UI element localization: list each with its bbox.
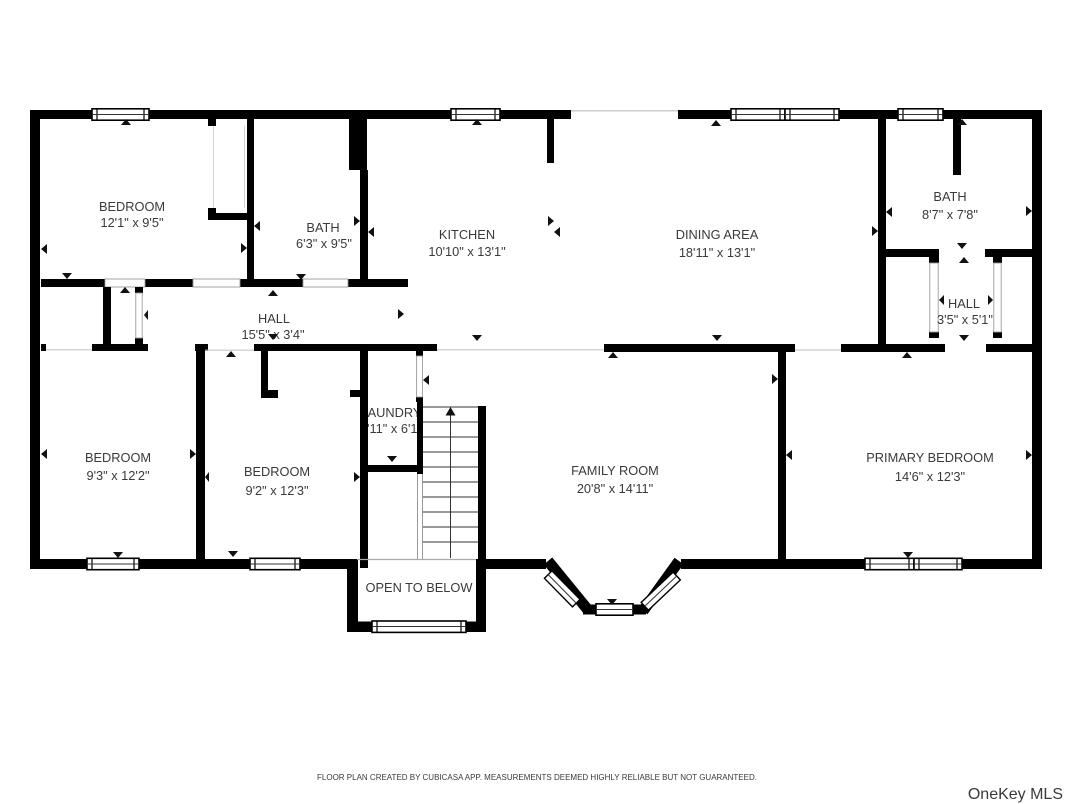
svg-text:PRIMARY BEDROOM: PRIMARY BEDROOM	[866, 450, 994, 465]
svg-text:HALL: HALL	[948, 296, 980, 311]
svg-text:BATH: BATH	[933, 189, 966, 204]
svg-text:20'8" x 14'11": 20'8" x 14'11"	[577, 481, 653, 496]
svg-text:2'11" x 6'1": 2'11" x 6'1"	[360, 421, 422, 436]
svg-text:HALL: HALL	[258, 311, 290, 326]
svg-text:KITCHEN: KITCHEN	[439, 227, 495, 242]
svg-text:9'3" x 12'2": 9'3" x 12'2"	[86, 468, 149, 483]
svg-text:14'6" x 12'3": 14'6" x 12'3"	[895, 469, 965, 484]
svg-text:6'3" x 9'5": 6'3" x 9'5"	[296, 236, 352, 251]
svg-text:BEDROOM: BEDROOM	[244, 464, 310, 479]
svg-text:8'7" x 7'8": 8'7" x 7'8"	[922, 207, 978, 222]
svg-text:9'2" x 12'3": 9'2" x 12'3"	[245, 483, 308, 498]
svg-text:3'5" x 5'1": 3'5" x 5'1"	[937, 312, 993, 327]
svg-text:12'1" x 9'5": 12'1" x 9'5"	[100, 215, 163, 230]
svg-text:BEDROOM: BEDROOM	[99, 199, 165, 214]
svg-text:LAUNDRY: LAUNDRY	[361, 405, 422, 420]
svg-text:BATH: BATH	[306, 220, 339, 235]
svg-text:18'11" x 13'1": 18'11" x 13'1"	[679, 245, 755, 260]
svg-text:OneKey MLS: OneKey MLS	[968, 786, 1063, 803]
svg-text:FLOOR PLAN CREATED BY CUBICASA: FLOOR PLAN CREATED BY CUBICASA APP. MEAS…	[317, 773, 757, 782]
svg-text:BEDROOM: BEDROOM	[85, 450, 151, 465]
svg-text:OPEN TO BELOW: OPEN TO BELOW	[366, 580, 474, 595]
svg-text:DINING AREA: DINING AREA	[676, 227, 759, 242]
svg-text:FAMILY ROOM: FAMILY ROOM	[571, 463, 659, 478]
svg-text:10'10" x 13'1": 10'10" x 13'1"	[428, 244, 505, 259]
